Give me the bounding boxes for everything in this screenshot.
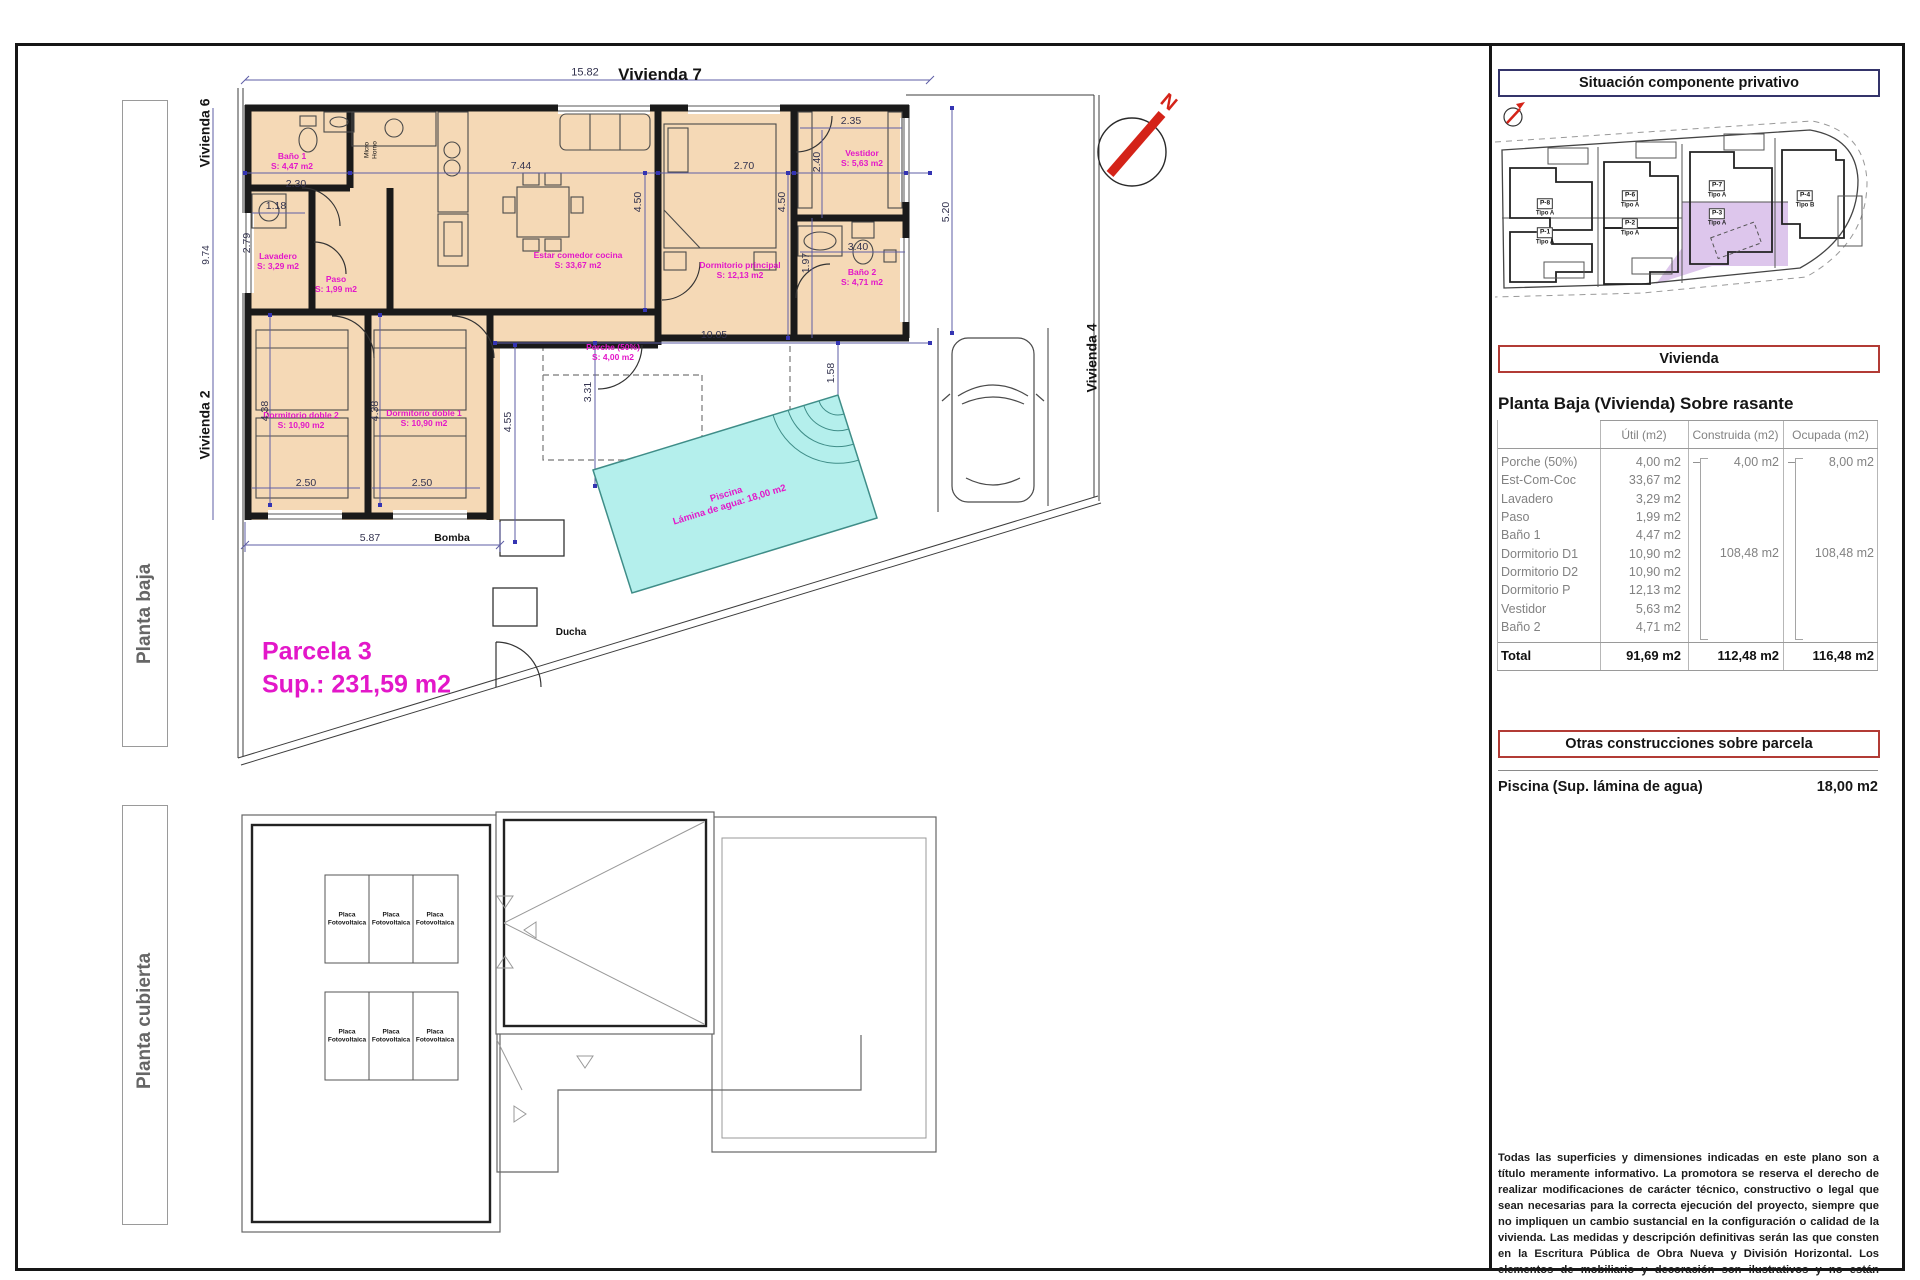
table-gridline <box>1497 670 1878 671</box>
plan-label: 1.18 <box>266 200 286 212</box>
row-label: Paso <box>1501 508 1530 526</box>
site-plot-p-3: P-3Tipo A <box>1708 202 1726 226</box>
plan-label: 1.58 <box>825 363 837 383</box>
pv-panel-label: Placa Fotovoltaica <box>372 1028 410 1043</box>
areas-table: Útil (m2)Construida (m2)Ocupada (m2)Porc… <box>1497 420 1878 672</box>
construida-group-value: 108,48 m2 <box>1701 544 1779 562</box>
plan-label: 15.82 <box>571 67 599 80</box>
pv-panel-label: Placa Fotovoltaica <box>328 911 366 926</box>
plan-label: Dormitorio doble 1 S: 10,90 m2 <box>386 408 462 428</box>
col-header-util: Útil (m2) <box>1600 426 1688 444</box>
site-plot-p-2: P-2Tipo A <box>1621 212 1639 236</box>
pv-panel-label: Placa Fotovoltaica <box>328 1028 366 1043</box>
site-plot-p-8: P-8Tipo A <box>1536 192 1554 216</box>
table-gridline <box>1497 642 1878 643</box>
plan-label: Lavadero S: 3,29 m2 <box>257 251 299 271</box>
col-header-ocupada: Ocupada (m2) <box>1783 426 1878 444</box>
plan-label: Vivienda 6 <box>197 98 214 167</box>
plan-label: 2.40 <box>811 152 823 172</box>
plan-label: Vestidor S: 5,63 m2 <box>841 148 883 168</box>
plan-label: 4.55 <box>502 412 514 432</box>
pv-panel-label: Placa Fotovoltaica <box>416 911 454 926</box>
total-util: 91,69 m2 <box>1603 647 1681 665</box>
row-util: 3,29 m2 <box>1603 490 1681 508</box>
row-util: 4,00 m2 <box>1603 453 1681 471</box>
ocupada-group-value: 108,48 m2 <box>1796 544 1874 562</box>
panel-divider <box>1489 43 1492 1271</box>
planta-cubierta-label: Planta cubierta <box>134 1045 156 1089</box>
site-plot-p-6: P-6Tipo A <box>1621 184 1639 208</box>
row-util: 10,90 m2 <box>1603 563 1681 581</box>
plan-label: 2.35 <box>841 115 861 127</box>
table-gridline <box>1877 420 1878 670</box>
plan-label: 4.50 <box>776 192 788 212</box>
row-construida-dash: – <box>1693 453 1700 471</box>
table-title: Planta Baja (Vivienda) Sobre rasante <box>1498 394 1793 414</box>
plan-sheet: Planta baja Planta cubierta Situación co… <box>0 0 1920 1280</box>
row-label: Dormitorio D2 <box>1501 563 1578 581</box>
vivienda-title: Vivienda <box>1498 345 1880 373</box>
disclaimer-text: Todas las superficies y dimensiones indi… <box>1498 1150 1879 1280</box>
otras-title: Otras construcciones sobre parcela <box>1498 730 1880 758</box>
plan-label: Dormitorio doble 2 S: 10,90 m2 <box>263 410 339 430</box>
plan-label: 2.50 <box>296 477 316 489</box>
plan-label: 2.70 <box>734 160 754 172</box>
row-label: Baño 1 <box>1501 526 1541 544</box>
row-util: 4,71 m2 <box>1603 618 1681 636</box>
plan-label: 2.50 <box>412 477 432 489</box>
piscina-row: Piscina (Sup. lámina de agua) 18,00 m2 <box>1498 779 1878 795</box>
plan-label: Baño 2 S: 4,71 m2 <box>841 267 883 287</box>
plan-label: 4.38 <box>259 401 271 421</box>
table-gridline <box>1497 448 1878 449</box>
planta-baja-tag: Planta baja <box>122 100 168 747</box>
plan-label: Vivienda 7 <box>618 65 702 85</box>
table-gridline <box>1688 420 1689 670</box>
plan-label: Estar comedor cocina S: 33,67 m2 <box>534 250 623 270</box>
row-util: 12,13 m2 <box>1603 581 1681 599</box>
plan-label: Ducha <box>556 627 587 639</box>
planta-cubierta-tag: Planta cubierta <box>122 805 168 1225</box>
row-label: Vestidor <box>1501 600 1546 618</box>
plan-label: Parcela 3 <box>262 637 372 667</box>
plan-label: Vivienda 4 <box>1084 323 1101 392</box>
plan-label: Baño 1 S: 4,47 m2 <box>271 151 313 171</box>
piscina-label: Piscina (Sup. lámina de agua) <box>1498 779 1703 795</box>
total-label: Total <box>1501 647 1531 665</box>
col-header-construida: Construida (m2) <box>1688 426 1783 444</box>
plan-label: 3.31 <box>582 382 594 402</box>
plan-label: 7.44 <box>511 160 531 172</box>
plan-label: 2.30 <box>286 178 306 190</box>
table-gridline <box>1600 420 1601 670</box>
row-label: Lavadero <box>1501 490 1553 508</box>
piscina-value: 18,00 m2 <box>1817 779 1878 795</box>
planta-baja-label: Planta baja <box>134 620 156 664</box>
row-ocupada-dash: – <box>1788 453 1795 471</box>
row-util: 1,99 m2 <box>1603 508 1681 526</box>
plan-label: 4.38 <box>369 401 381 421</box>
plan-label: Vivienda 2 <box>197 390 214 459</box>
plan-label: 5.87 <box>360 532 380 544</box>
piscina-divider <box>1498 770 1878 771</box>
table-gridline <box>1497 420 1498 670</box>
row-util: 10,90 m2 <box>1603 545 1681 563</box>
row-util: 5,63 m2 <box>1603 600 1681 618</box>
total-construida: 112,48 m2 <box>1693 647 1779 665</box>
plan-label: Sup.: 231,59 m2 <box>262 670 451 700</box>
total-ocupada: 116,48 m2 <box>1788 647 1874 665</box>
plan-label: Dormitorio principal S: 12,13 m2 <box>699 260 780 280</box>
plan-label: 5.20 <box>940 202 952 222</box>
row-label: Dormitorio P <box>1501 581 1570 599</box>
plan-label: Bomba <box>434 532 470 544</box>
row-util: 33,67 m2 <box>1603 471 1681 489</box>
row-ocupada: 8,00 m2 <box>1796 453 1874 471</box>
plan-label: 1.97 <box>800 253 812 273</box>
row-label: Est-Com-Coc <box>1501 471 1576 489</box>
plan-label: 3.40 <box>848 241 868 253</box>
pv-panel-label: Placa Fotovoltaica <box>372 911 410 926</box>
plan-label: 2.79 <box>241 233 253 253</box>
plan-label: Micro Horno <box>363 141 378 159</box>
table-gridline <box>1783 420 1784 670</box>
plan-label: Porche (50%) S: 4,00 m2 <box>586 342 640 362</box>
row-label: Baño 2 <box>1501 618 1541 636</box>
plan-label: Paso S: 1,99 m2 <box>315 274 357 294</box>
plan-label: 10.05 <box>701 329 727 341</box>
site-plot-p-1: P-1Tipo A <box>1536 221 1554 245</box>
row-label: Porche (50%) <box>1501 453 1577 471</box>
site-plot-p-7: P-7Tipo A <box>1708 174 1726 198</box>
table-gridline <box>1600 420 1878 421</box>
site-plot-p-4: P-4Tipo B <box>1796 184 1815 208</box>
row-util: 4,47 m2 <box>1603 526 1681 544</box>
plan-label: 4.50 <box>632 192 644 212</box>
row-construida: 4,00 m2 <box>1701 453 1779 471</box>
plan-label: 9.74 <box>201 245 213 264</box>
row-label: Dormitorio D1 <box>1501 545 1578 563</box>
pv-panel-label: Placa Fotovoltaica <box>416 1028 454 1043</box>
situacion-title: Situación componente privativo <box>1498 69 1880 97</box>
